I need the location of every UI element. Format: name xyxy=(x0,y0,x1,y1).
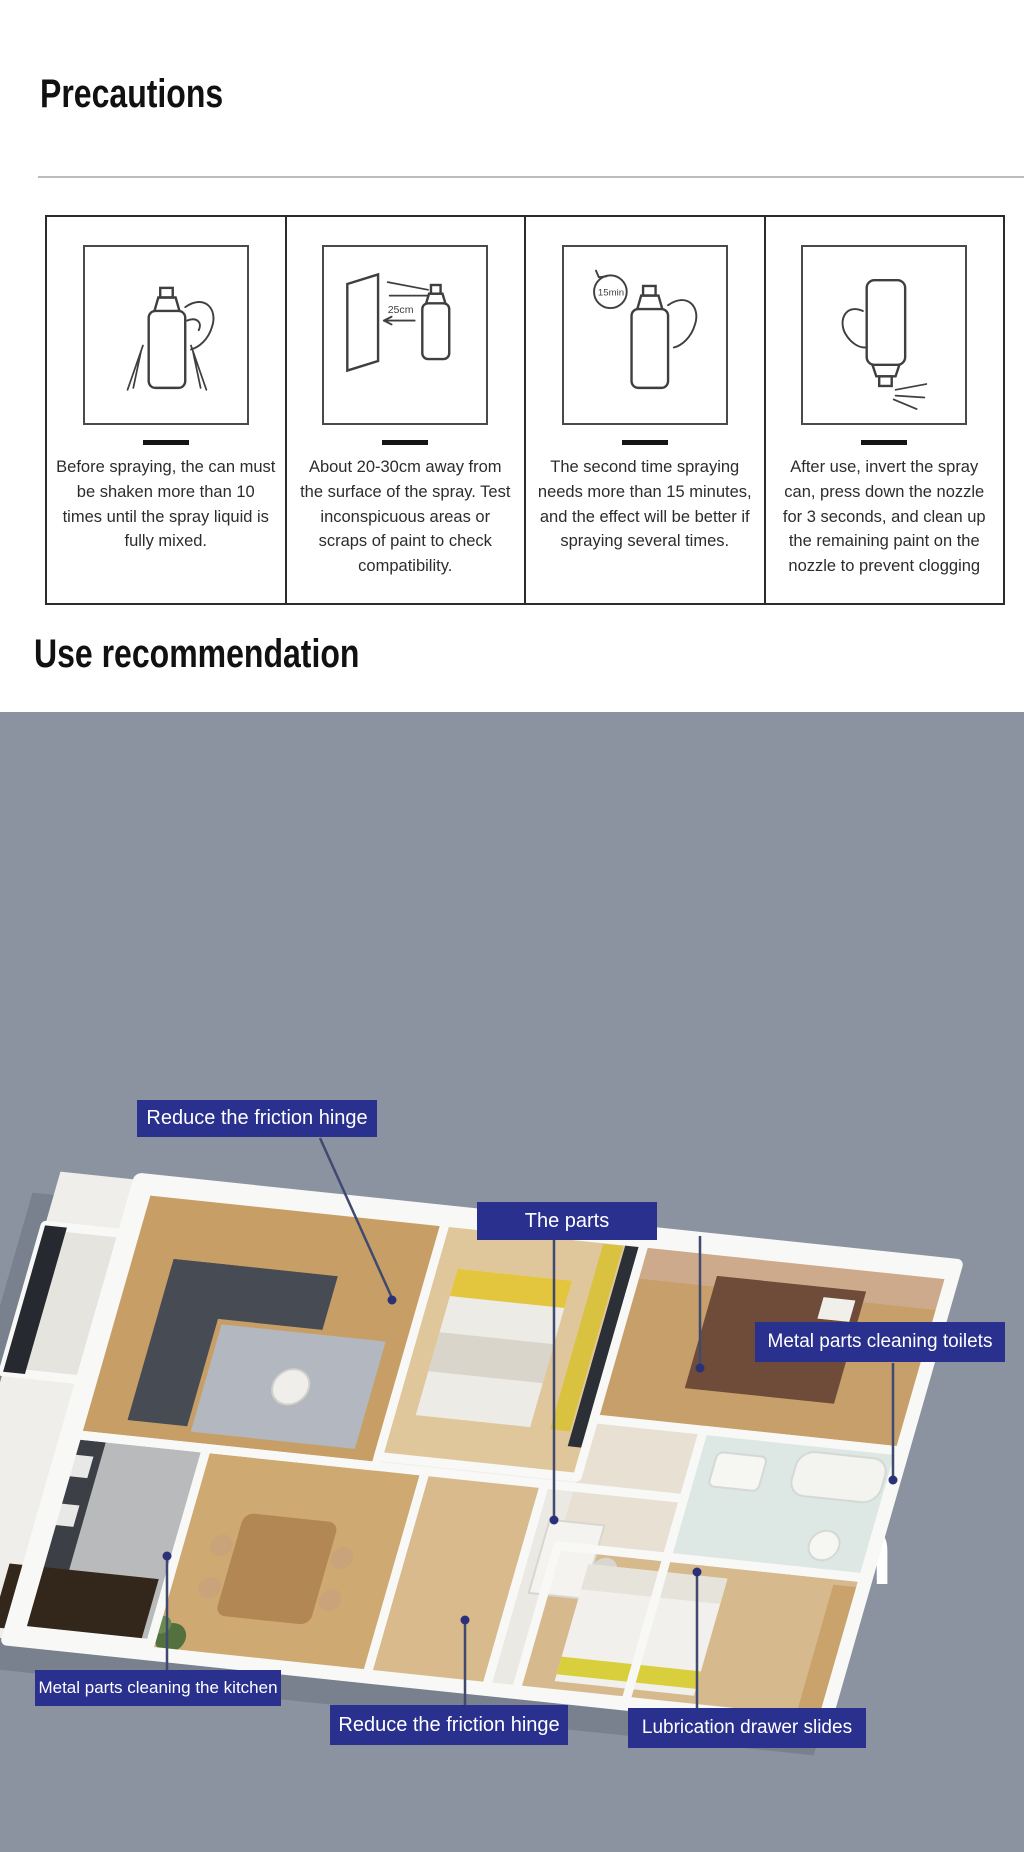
callout-reduce-friction-hinge-bottom: Reduce the friction hinge xyxy=(330,1705,568,1745)
product-detail-page: Precautions Before spraying, the can mus… xyxy=(0,0,1024,1852)
callout-the-parts: The parts xyxy=(477,1202,657,1240)
floor-plan-illustration xyxy=(0,0,1024,1852)
callout-metal-parts-toilets: Metal parts cleaning toilets xyxy=(755,1322,1005,1362)
callout-lubrication-drawer-slides: Lubrication drawer slides xyxy=(628,1708,866,1748)
apartment-plan xyxy=(0,1166,957,1725)
callout-reduce-friction-hinge-top: Reduce the friction hinge xyxy=(137,1100,377,1137)
callout-metal-parts-kitchen: Metal parts cleaning the kitchen xyxy=(35,1670,281,1706)
